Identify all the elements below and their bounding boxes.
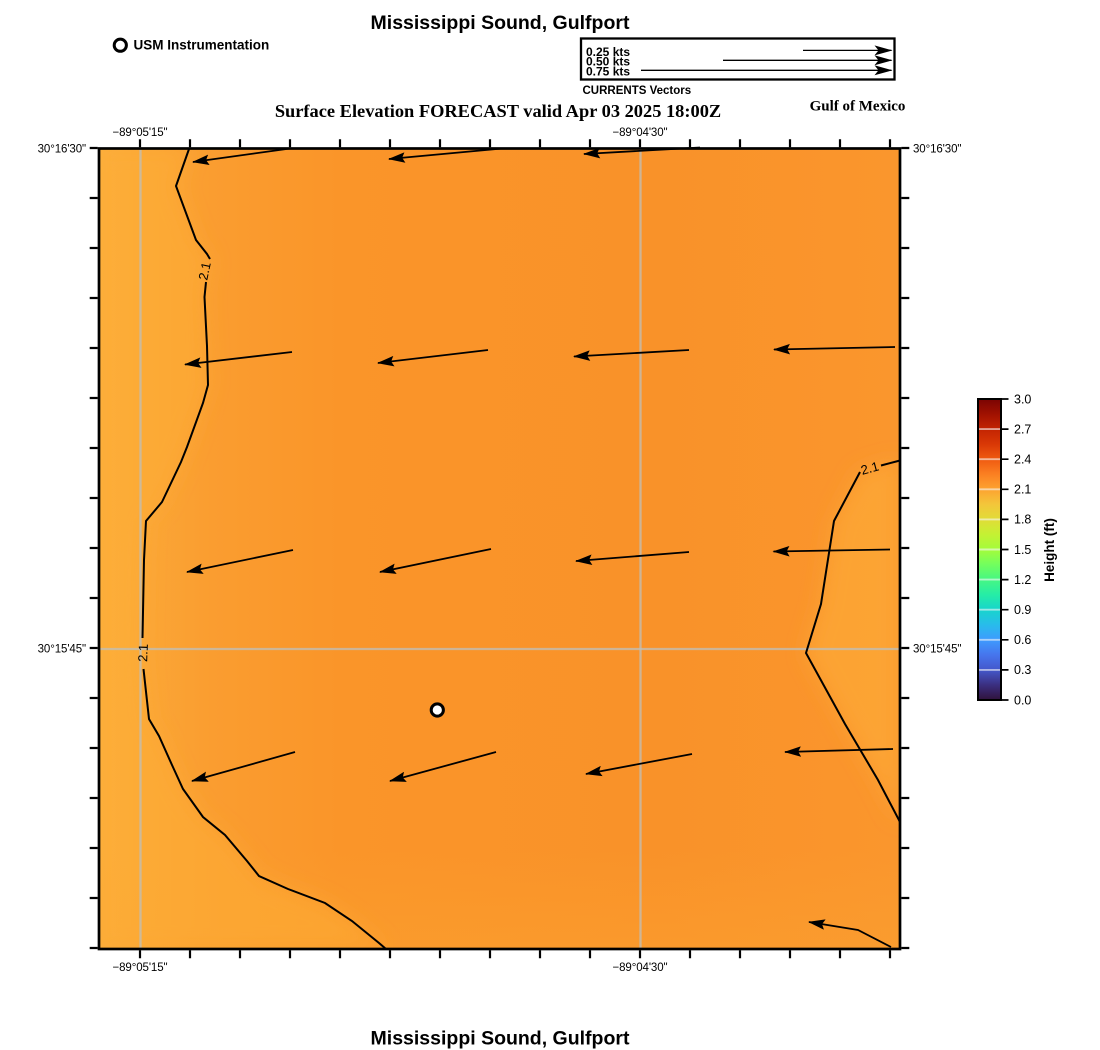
svg-text:−89°05'15": −89°05'15" [113,962,168,974]
svg-text:0.75 kts: 0.75 kts [586,65,630,79]
svg-text:2.1: 2.1 [135,644,151,663]
svg-text:0.3: 0.3 [1014,663,1031,677]
svg-text:3.0: 3.0 [1014,392,1031,406]
svg-text:30°16'30": 30°16'30" [38,144,86,156]
svg-text:1.8: 1.8 [1014,513,1031,527]
svg-text:−89°04'30": −89°04'30" [613,962,668,974]
svg-text:Surface Elevation FORECAST val: Surface Elevation FORECAST valid Apr 03 … [275,101,721,121]
svg-text:0.0: 0.0 [1014,693,1031,707]
svg-text:30°16'30": 30°16'30" [913,144,961,156]
svg-text:1.5: 1.5 [1014,543,1031,557]
svg-text:0.9: 0.9 [1014,603,1031,617]
svg-text:Mississippi Sound, Gulfport: Mississippi Sound, Gulfport [371,12,630,34]
svg-text:Gulf of Mexico: Gulf of Mexico [810,99,906,115]
svg-text:2.4: 2.4 [1014,453,1031,467]
svg-text:2.7: 2.7 [1014,422,1031,436]
svg-text:USM Instrumentation: USM Instrumentation [134,37,270,52]
svg-text:1.2: 1.2 [1014,573,1031,587]
svg-text:−89°05'15": −89°05'15" [113,127,168,139]
svg-text:Height (ft): Height (ft) [1042,518,1057,582]
svg-text:30°15'45": 30°15'45" [38,644,86,656]
svg-text:CURRENTS Vectors: CURRENTS Vectors [583,85,692,97]
svg-text:2.1: 2.1 [1014,483,1031,497]
svg-text:0.6: 0.6 [1014,633,1031,647]
svg-text:Mississippi Sound, Gulfport: Mississippi Sound, Gulfport [371,1028,630,1050]
svg-text:30°15'45": 30°15'45" [913,644,961,656]
svg-text:−89°04'30": −89°04'30" [613,127,668,139]
